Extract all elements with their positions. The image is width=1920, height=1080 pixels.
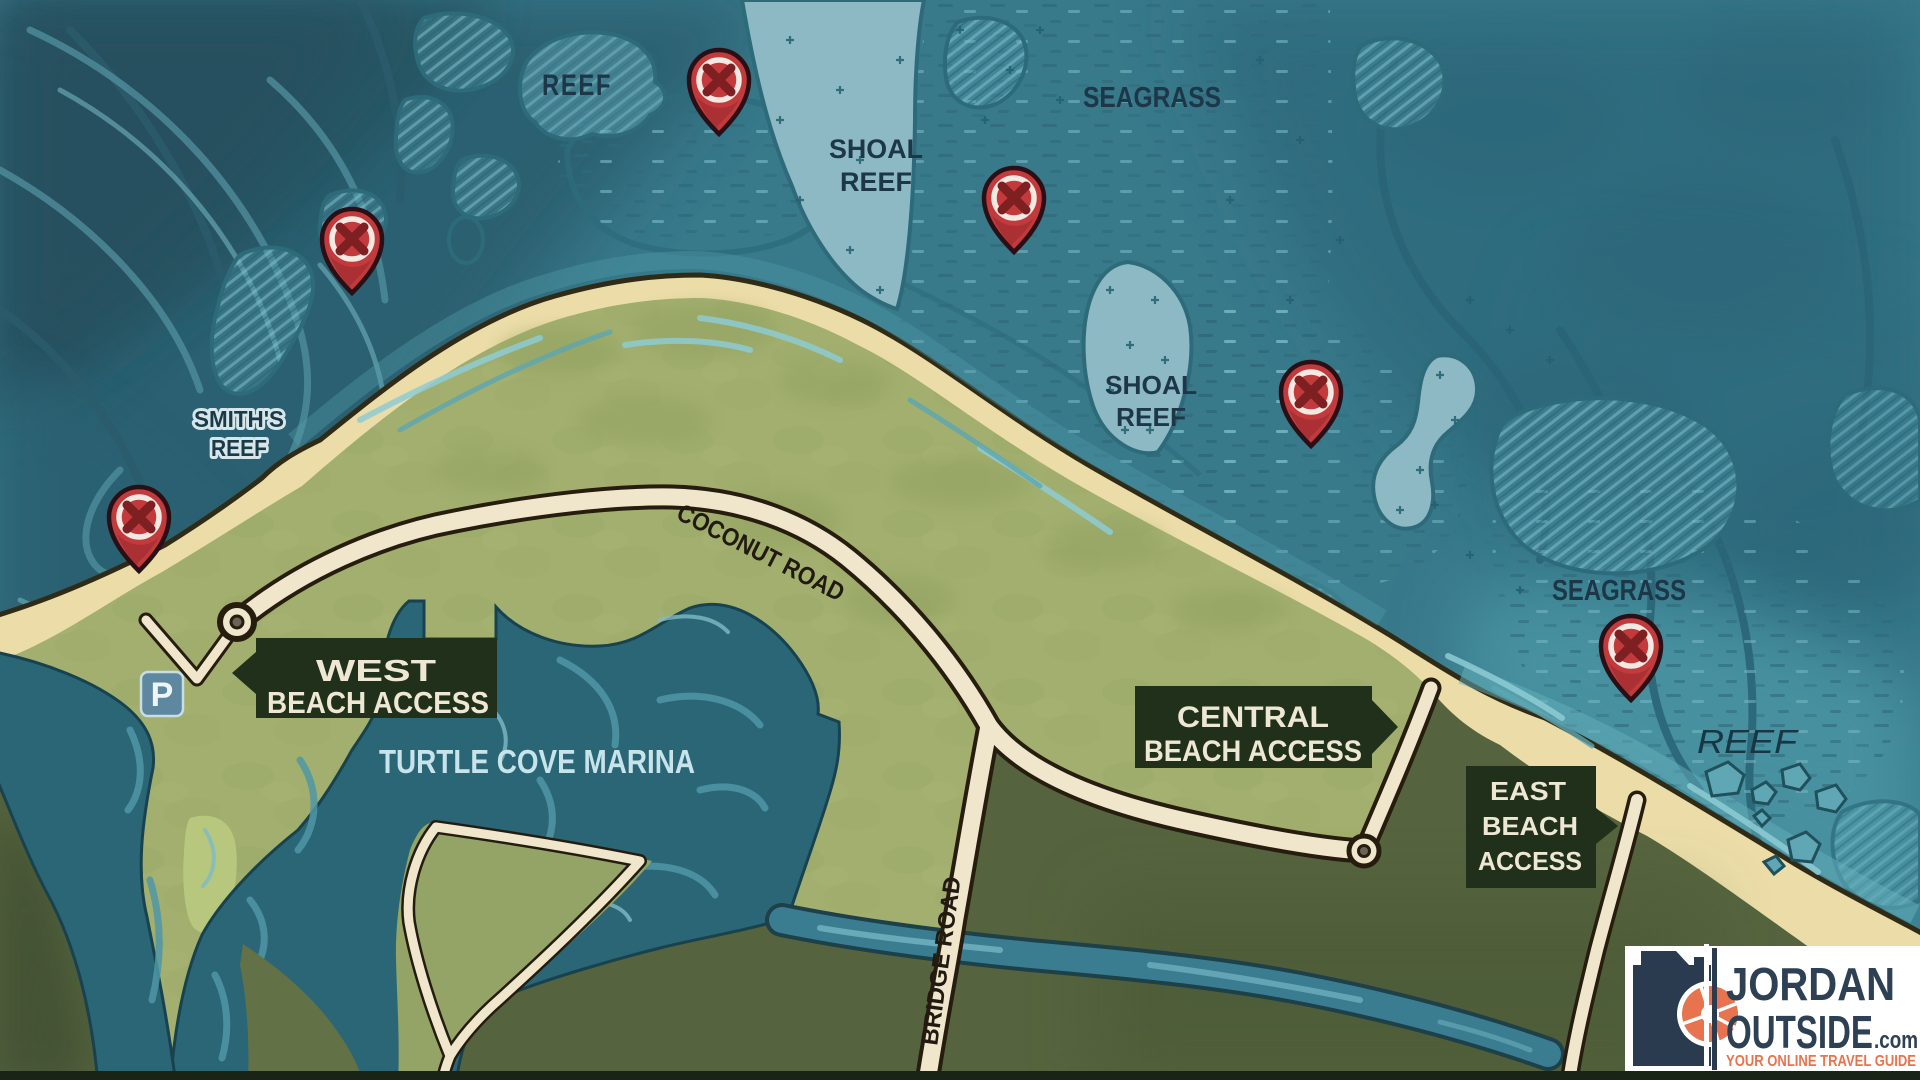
svg-text:SEAGRASS: SEAGRASS — [1552, 575, 1686, 607]
svg-text:REEF: REEF — [1697, 723, 1799, 760]
svg-text:SEAGRASS: SEAGRASS — [1083, 82, 1221, 114]
svg-text:REEF: REEF — [542, 69, 612, 102]
svg-text:SHOAL: SHOAL — [829, 134, 923, 164]
svg-text:SHOAL: SHOAL — [1105, 370, 1197, 400]
svg-text:P: P — [151, 676, 174, 714]
svg-text:BEACH ACCESS: BEACH ACCESS — [1144, 735, 1362, 768]
svg-text:TURTLE COVE MARINA: TURTLE COVE MARINA — [379, 743, 695, 780]
svg-text:ACCESS: ACCESS — [1478, 846, 1582, 876]
svg-text:REEF: REEF — [840, 167, 912, 197]
svg-text:JORDAN: JORDAN — [1726, 958, 1895, 1010]
svg-text:SMITH'S: SMITH'S — [194, 406, 284, 432]
svg-text:YOUR ONLINE TRAVEL GUIDE: YOUR ONLINE TRAVEL GUIDE — [1726, 1053, 1916, 1070]
svg-text:.com: .com — [1874, 1027, 1918, 1054]
svg-text:REEF: REEF — [211, 435, 267, 461]
svg-text:REEF: REEF — [1116, 402, 1186, 432]
svg-text:BEACH ACCESS: BEACH ACCESS — [267, 685, 489, 720]
svg-text:BEACH: BEACH — [1482, 811, 1578, 841]
svg-text:CENTRAL: CENTRAL — [1177, 701, 1329, 734]
svg-text:EAST: EAST — [1490, 776, 1566, 806]
svg-text:WEST: WEST — [316, 653, 436, 688]
svg-text:OUTSIDE: OUTSIDE — [1726, 1006, 1873, 1058]
